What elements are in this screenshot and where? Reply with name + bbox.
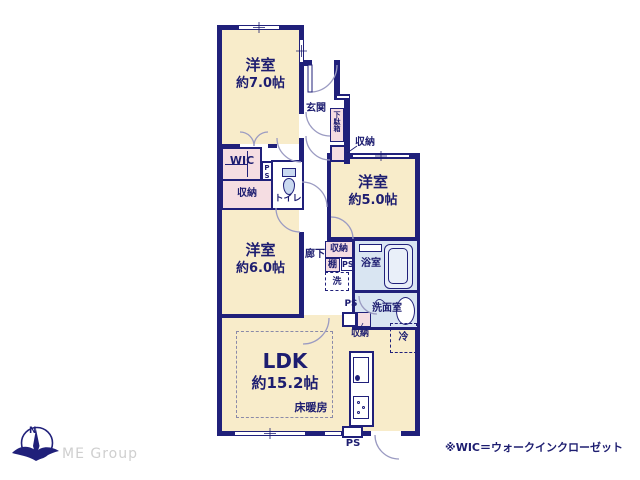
senmen-pointer <box>373 299 385 309</box>
toilet-door-arc <box>302 182 327 207</box>
getabako-door-arc-1 <box>306 112 330 136</box>
window-tick-room7-side <box>296 45 307 57</box>
front-door-leaf <box>308 65 312 92</box>
balcony-door-arc <box>375 435 399 459</box>
window-tick-room7 <box>253 22 265 33</box>
floorplan-page: WIC PS トイレ 収納 下駄箱 収納 棚 PS 洗 浴室 洗面室 <box>0 0 640 480</box>
ldk-door-arc <box>303 318 329 344</box>
shuno-genkan-arrow <box>347 146 357 153</box>
compass-north-label: N <box>29 426 37 436</box>
wic-door-arc-left <box>240 132 254 146</box>
front-door-arc <box>312 65 337 92</box>
plan-symbols-overlay: N <box>0 0 640 480</box>
window-tick-ldk <box>264 428 276 439</box>
room6-door-arc <box>276 208 300 232</box>
room7-door-arc <box>277 138 301 162</box>
window-tick-room5 <box>375 151 387 161</box>
shuno-senmen-arrow <box>360 323 363 329</box>
room5-door-arc <box>331 217 353 239</box>
me-group-logo: N <box>12 426 59 461</box>
wic-door-arc-right <box>254 132 268 146</box>
getabako-door-arc-2 <box>306 136 330 160</box>
